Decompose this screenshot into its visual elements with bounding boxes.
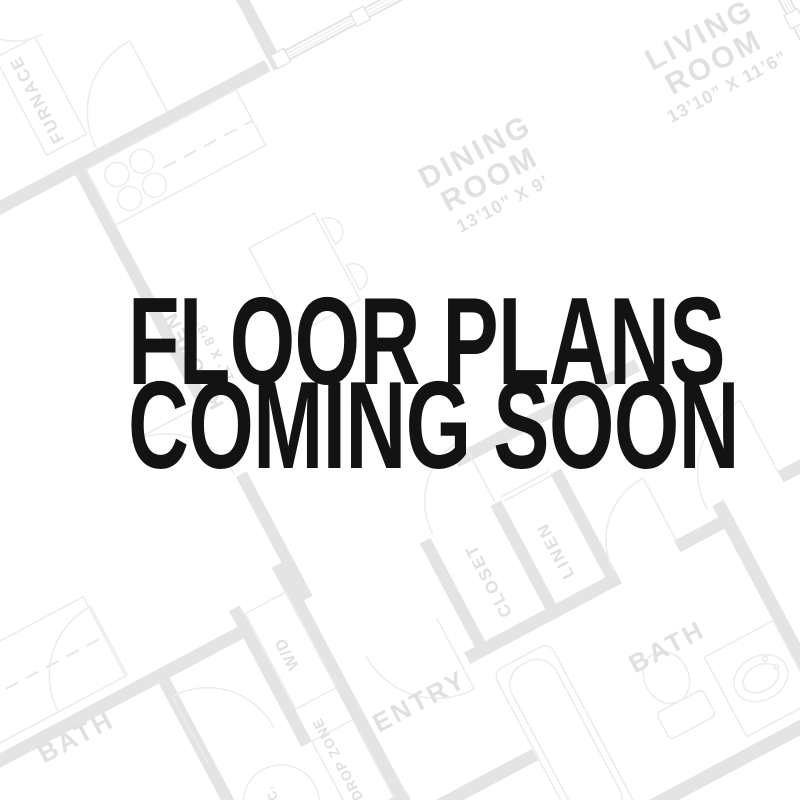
door-arc [173, 661, 274, 762]
wall [712, 500, 800, 718]
wall [229, 605, 312, 747]
wall [416, 749, 539, 800]
coming-soon-title: FLOOR PLANS COMING SOON [0, 300, 800, 468]
room-label-bath: BATH [624, 614, 711, 679]
floor-plan-placeholder-page: LIVING ROOM 13’10” X 11’6” DINING ROOM 1… [0, 0, 800, 800]
room-label-washer-dryer: W/D [272, 635, 303, 673]
window-band-top [271, 0, 696, 69]
room-label-dining: DINING ROOM 13’10” X 9’ [413, 109, 562, 242]
walk-in-closet-circle [230, 752, 333, 800]
room-label-linen: LINEN [533, 519, 578, 582]
bathtub [493, 642, 640, 800]
title-line-2: COMING SOON [128, 384, 672, 468]
room-label-furnace: FURNACE [6, 52, 68, 147]
cabinet-dashed-line [163, 121, 252, 168]
room-label-closet: CLOSET [461, 540, 516, 620]
closet-rod-dashed-line [0, 636, 104, 710]
bar-stool [322, 213, 348, 244]
room-label-living: LIVING ROOM 13’10” X 11’6” [633, 0, 790, 127]
room-label-entry: ENTRY [367, 664, 471, 738]
room-label-wic: W.I.C. [261, 783, 294, 800]
